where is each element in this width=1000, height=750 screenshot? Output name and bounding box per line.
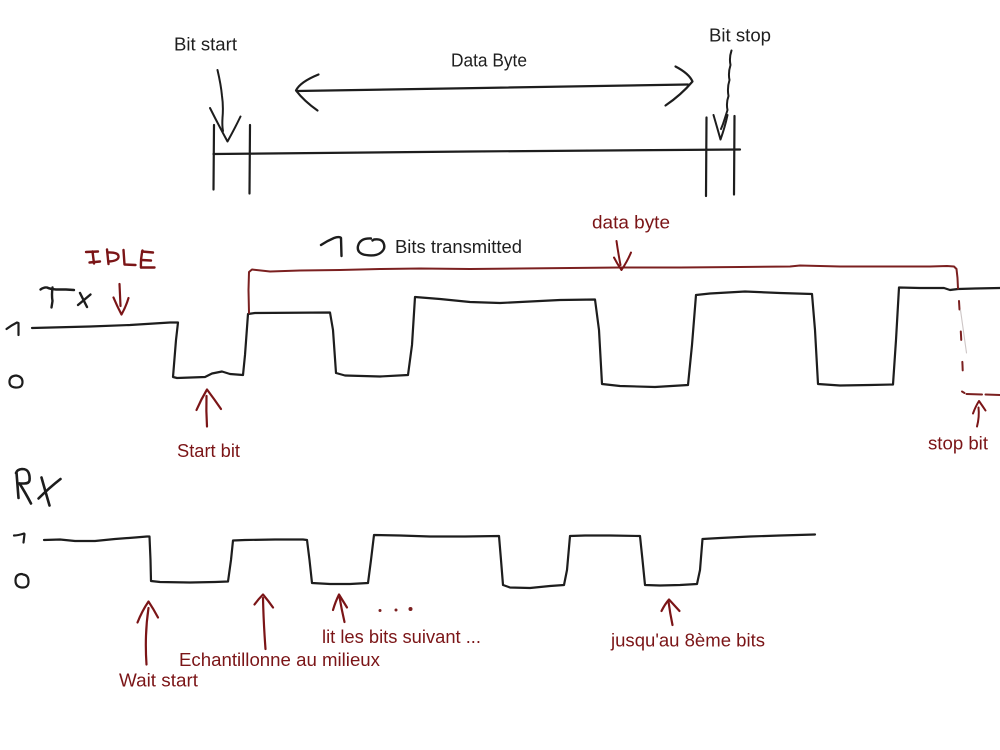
svg-text:Start bit: Start bit <box>177 441 240 461</box>
svg-text:stop bit: stop bit <box>928 434 988 454</box>
svg-text:lit les bits suivant ...: lit les bits suivant ... <box>322 627 481 647</box>
svg-text:Bits transmitted: Bits transmitted <box>395 237 522 257</box>
svg-text:Wait start: Wait start <box>119 671 198 691</box>
svg-text:Bit start: Bit start <box>174 35 237 55</box>
svg-text:data byte: data byte <box>592 213 670 233</box>
svg-text:Bit stop: Bit stop <box>709 26 771 46</box>
svg-text:Data Byte: Data Byte <box>451 51 527 71</box>
svg-text:jusqu'au 8ème bits: jusqu'au 8ème bits <box>610 631 765 651</box>
svg-text:Echantillonne au milieux: Echantillonne au milieux <box>179 650 380 670</box>
